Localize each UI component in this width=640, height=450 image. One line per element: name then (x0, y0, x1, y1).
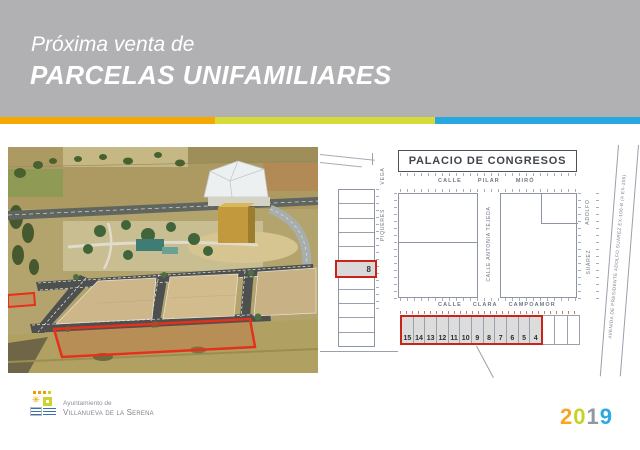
map-line (320, 154, 375, 161)
plot-cell: 11 (449, 317, 461, 343)
plot-cell: 6 (507, 317, 519, 343)
street-vega-label: VEGA (380, 161, 386, 191)
block-divider (541, 194, 542, 223)
street-word: CAMPOAMOR (509, 302, 556, 308)
city-block-left (398, 193, 478, 298)
logo-text-line2: Villanueva de la Serena (63, 408, 154, 418)
street-ticks (400, 173, 576, 176)
palacio-label: PALACIO DE CONGRESOS (409, 155, 567, 167)
highlighted-plot-8: 8 (335, 260, 377, 278)
logo-text-line1: Ayuntamiento de (63, 400, 154, 408)
accent-stripe (0, 117, 640, 124)
year-label: 2019 (560, 404, 613, 430)
gold-cube (218, 207, 248, 243)
street-ticks (394, 191, 397, 299)
logo-document-icon (30, 407, 42, 416)
year-digit: 1 (587, 404, 600, 430)
highlighted-plot-range: 151413121110987654 (400, 315, 543, 345)
street-clara-campoamor-label: CALLECLARACAMPOAMOR (438, 302, 556, 308)
plot-cell: 5 (519, 317, 531, 343)
plot-cell: 15 (402, 317, 414, 343)
year-digit: 9 (600, 404, 613, 430)
left-plot-row (339, 219, 374, 233)
street-adolfo-label: ADOLFO (585, 194, 591, 230)
map-line (372, 153, 373, 165)
street-ticks (578, 193, 581, 299)
plot-cell: 12 (437, 317, 449, 343)
left-plot-row (339, 290, 374, 304)
year-digit: 2 (560, 404, 573, 430)
unnumbered-plots (543, 315, 580, 345)
plot-8-label: 8 (367, 265, 371, 274)
site-plan: PALACIO DE CONGRESOS CALLEPILARMIRÓ CALL… (320, 147, 640, 375)
map-line (320, 162, 362, 167)
street-word: CLARA (473, 302, 498, 308)
plot-cell: 8 (484, 317, 496, 343)
left-plot-row (339, 233, 374, 247)
city-logo-icon: ✳ (30, 391, 57, 416)
palacio-de-congresos-block: PALACIO DE CONGRESOS (398, 150, 577, 172)
street-word: PILAR (478, 178, 500, 184)
logo-square-icon (43, 397, 52, 406)
block-divider (399, 242, 477, 243)
plot-cell-empty (555, 316, 567, 344)
logo-flower-icon: ✳ (30, 396, 42, 406)
aerial-photo (8, 147, 318, 373)
left-plot-row (339, 333, 374, 346)
left-plot-row (339, 318, 374, 332)
logo-lines-icon (43, 408, 56, 415)
logo-dots-icon (33, 391, 57, 394)
plot-cell: 13 (425, 317, 437, 343)
year-digit: 0 (573, 404, 586, 430)
city-logo: ✳ Ayuntamiento de Villanueva de la Seren… (30, 391, 154, 418)
street-ticks (376, 187, 379, 309)
bottom-plot-strip: 151413121110987654 (400, 315, 580, 345)
left-plot-row (339, 304, 374, 318)
plot-number-ticks (400, 311, 580, 314)
plot-cell: 4 (530, 317, 541, 343)
block-divider (541, 223, 578, 224)
header-banner: Próxima venta de PARCELAS UNIFAMILIARES (0, 0, 640, 117)
plot-cell-empty (543, 316, 555, 344)
left-plot-row (339, 204, 374, 218)
street-antonia-tejeda-label: CALLE ANTONIA TEJEDA (486, 199, 492, 289)
photo-highlight-left (8, 293, 35, 307)
plot-cell-empty (568, 316, 579, 344)
left-plot-row (339, 190, 374, 204)
plot-cell: 7 (495, 317, 507, 343)
stripe-segment (435, 117, 640, 124)
street-ticks (596, 193, 599, 299)
city-block-right (500, 193, 577, 298)
map-line (320, 351, 398, 352)
street-word: CALLE (438, 178, 462, 184)
plot-cell: 14 (414, 317, 426, 343)
stripe-segment (215, 117, 435, 124)
street-ticks (400, 298, 578, 301)
stripe-segment (0, 117, 215, 124)
street-word: MIRÓ (516, 178, 535, 184)
street-pilar-miro-label: CALLEPILARMIRÓ (438, 178, 535, 184)
street-ticks (400, 189, 576, 192)
street-suarez-label: SUÁREZ (586, 244, 592, 280)
slide: Próxima venta de PARCELAS UNIFAMILIARES (0, 0, 640, 450)
plot-cell: 10 (460, 317, 472, 343)
street-piqueres-label: PIQUERES (380, 203, 386, 247)
street-word: CALLE (438, 302, 462, 308)
plot-cell: 9 (472, 317, 484, 343)
page-title: PARCELAS UNIFAMILIARES (30, 60, 392, 91)
header-subtitle: Próxima venta de (31, 33, 194, 57)
map-line (476, 346, 494, 378)
